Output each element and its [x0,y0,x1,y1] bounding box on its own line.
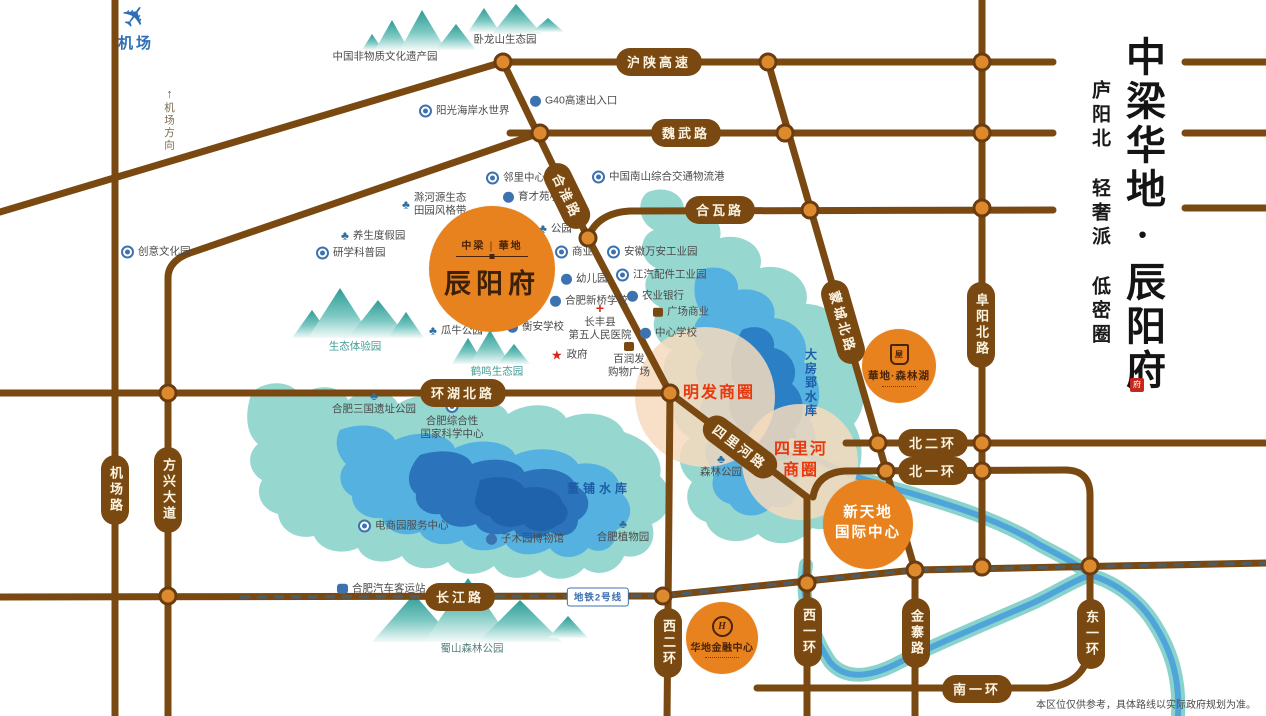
airport-direction: ↑ 机场方向 [162,88,177,152]
ring-icon [486,172,499,185]
poi-item: 生态体验园 [329,341,382,354]
location-map: ✈ 机场 ↑ 机场方向 地铁2号线 中梁 | 華地 辰阳府 屋 華地·森林湖 新… [0,0,1266,716]
decorative-rule [705,657,739,660]
road-label: 西二环 [654,608,682,678]
poi-label: 养生度假园 [353,230,406,243]
poi-item: 中国南山综合交通物流港 [592,171,725,184]
huadi-monogram-icon: H [712,616,733,637]
ring-icon [607,246,620,259]
poi-label: 中国非物质文化遗产园 [333,51,438,64]
cart-icon [653,308,663,317]
badge-icon [550,296,561,307]
commercial-zone-label: 四里河商圈 [774,440,828,482]
tree-icon: ♣ [429,326,437,336]
project-name: 辰阳府 [444,262,540,301]
poi-item: 中国非物质文化遗产园 [333,51,438,64]
road-label: 北一环 [898,457,968,485]
poi-label: G40高速出入口 [545,95,617,108]
page-title: 中梁华地·辰阳府 [1120,36,1164,393]
landmark-circle-senlinhu: 屋 華地·森林湖 [862,329,936,403]
poi-item: ♣合肥三国遗址公园 [332,391,416,416]
poi-item: 鹤鸣生态园 [471,366,524,379]
poi-item: 研学科普园 [316,247,386,260]
poi-label: 长丰县第五人民医院 [569,316,632,341]
road-label: 北二环 [898,429,968,457]
tree-icon: ♣ [341,231,349,241]
road-label: 魏武路 [651,119,721,147]
landmark-circle-huadi-finance: H 华地金融中心 [686,602,758,674]
road-label: 沪陕高速 [616,48,702,76]
poi-label: 商业 [572,246,593,259]
poi-label: 电商园服务中心 [375,520,449,533]
ring-icon [358,520,371,533]
cross-icon: + [596,303,604,314]
landmark-circle-xintiandi: 新天地 国际中心 [823,479,913,569]
poi-item: 幼儿园 [561,273,608,286]
poi-item: ♣滁河源生态田园风格带 [402,191,466,216]
airport-label: 机场 [118,32,154,53]
tree-icon: ♣ [717,454,725,464]
poi-item: ♣合肥植物园 [597,519,650,544]
poi-label: 子木园博物馆 [501,533,564,546]
poi-label: 合肥综合性国家科学中心 [421,415,484,440]
badge-icon [640,328,651,339]
airplane-icon: ✈ [117,0,156,36]
poi-label: 生态体验园 [329,341,382,354]
poi-item: 邻里中心 [486,172,545,185]
road-label: 长江路 [425,583,495,611]
red-seal-stamp: 府 [1130,378,1144,392]
metro-line-label: 地铁2号线 [567,588,629,607]
ring-icon [592,171,605,184]
road-label: 东一环 [1077,599,1105,669]
airport-marker: ✈ 机场 [118,2,154,53]
poi-label: 农业银行 [642,290,684,303]
road-label: 南一环 [942,675,1012,703]
water-label: 大房郢水库 [803,348,820,418]
poi-item: 蜀山森林公园 [441,643,504,656]
poi-item: 阳光海岸水世界 [419,105,510,118]
poi-item: 合肥汽车客运站 [337,583,426,596]
poi-label: 合肥汽车客运站 [352,583,426,596]
poi-label: 研学科普园 [333,247,386,260]
ring-icon [121,246,134,259]
poi-label: 百润发购物广场 [608,353,650,378]
ring-icon [555,246,568,259]
poi-label: 滁河源生态田园风格带 [414,191,467,216]
badge-icon [530,96,541,107]
water-label: 董铺水库 [567,480,631,497]
poi-item: ♣养生度假园 [341,230,405,243]
tree-icon: ♣ [402,199,410,209]
poi-label: 广场商业 [667,306,709,319]
tree-icon: ♣ [619,519,627,529]
poi-label: 合肥三国遗址公园 [332,403,416,416]
poi-label: 邻里中心 [503,172,545,185]
poi-label: 安徽万安工业园 [624,246,698,259]
project-badge-top: 中梁 | 華地 [461,237,522,252]
road-label: 方兴大道 [154,447,182,533]
project-circle-chenyangfu: 中梁 | 華地 辰阳府 [429,206,555,332]
poi-item: 子木园博物馆 [486,533,564,546]
badge-icon [486,534,497,545]
poi-item: 安徽万安工业园 [607,246,698,259]
poi-item: ★政府 [551,349,588,362]
poi-label: 中国南山综合交通物流港 [609,171,725,184]
road-label: 金寨路 [902,598,930,668]
decorative-rule [882,386,916,389]
bus-icon [337,584,348,594]
poi-label: 阳光海岸水世界 [436,105,510,118]
poi-item: 广场商业 [653,306,709,319]
poi-item: 江汽配件工业园 [616,269,707,282]
road-label: 环湖北路 [420,379,506,407]
poi-label: 森林公园 [700,466,742,479]
badge-divider [456,256,528,257]
poi-item: 卧龙山生态园 [474,34,537,47]
poi-item: 电商园服务中心 [358,520,449,533]
road-label: 阜阳北路 [967,282,995,368]
huadi-shield-icon: 屋 [890,344,909,365]
poi-item: 农业银行 [627,290,684,303]
badge-icon [561,274,572,285]
ring-icon [419,105,432,118]
road-label: 西一环 [794,597,822,667]
star-icon: ★ [551,350,563,361]
ring-icon [316,247,329,260]
ring-icon [616,269,629,282]
poi-item: 创意文化园 [121,246,191,259]
poi-label: 衡安学校 [522,321,564,334]
road-label: 合瓦路 [685,196,755,224]
poi-item: 百润发购物广场 [608,342,650,378]
up-arrow-icon: ↑ [166,88,173,100]
poi-item: G40高速出入口 [530,95,617,108]
poi-label: 幼儿园 [576,273,608,286]
poi-item: 中心学校 [640,327,697,340]
commercial-zone-label: 明发商圈 [683,384,755,405]
cart-icon [624,342,634,351]
poi-label: 江汽配件工业园 [633,269,707,282]
poi-label: 创意文化园 [138,246,191,259]
poi-item: 商业 [555,246,593,259]
badge-icon [503,192,514,203]
poi-label: 鹤鸣生态园 [471,366,524,379]
poi-label: 政府 [567,349,588,362]
poi-item: +长丰县第五人民医院 [569,303,632,341]
tree-icon: ♣ [370,391,378,401]
poi-label: 卧龙山生态园 [474,34,537,47]
poi-label: 蜀山森林公园 [441,643,504,656]
page-subtitle: 庐阳北 轻奢派 低密圈 [1086,80,1113,348]
badge-icon [627,291,638,302]
road-label: 机场路 [101,455,129,525]
map-disclaimer: 本区位仅供参考，具体路线以实际政府规划为准。 [1036,696,1256,711]
poi-label: 合肥植物园 [597,531,650,544]
poi-label: 中心学校 [655,327,697,340]
